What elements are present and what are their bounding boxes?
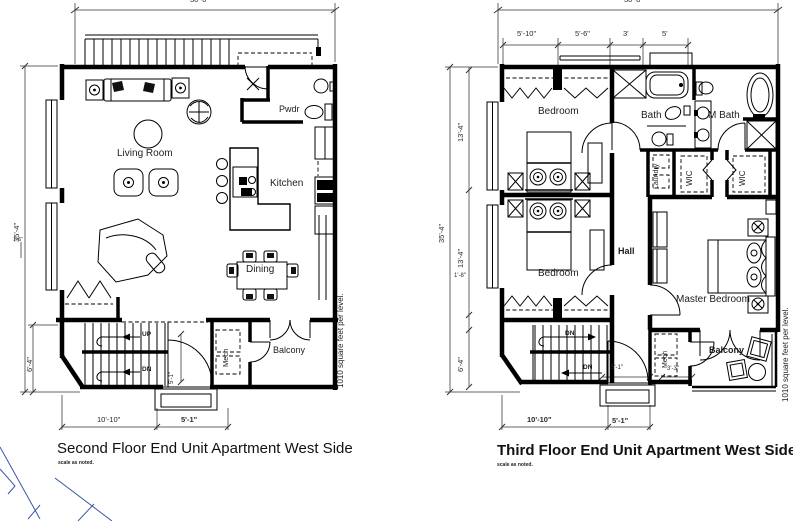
dashed-lines-third bbox=[506, 78, 765, 376]
dim-third-bottom-entry: 5'-1" bbox=[612, 417, 628, 425]
living-room-furniture bbox=[86, 78, 211, 282]
dim-second-bottom-entry: 5'-1" bbox=[181, 416, 197, 424]
dim-third-left-4: 6'-4" bbox=[457, 357, 465, 372]
room-label-dining: Dining bbox=[246, 265, 274, 275]
room-label-balcony-second: Balcony bbox=[273, 346, 305, 355]
dim-third-seg-1: 5'-10" bbox=[517, 30, 536, 38]
dim-second-stair-depth: 6'-4" bbox=[26, 357, 34, 372]
dim-third-seg-3: 3' bbox=[623, 30, 629, 38]
dim-second-overall-width: 30'-0" bbox=[190, 0, 209, 4]
stairs-second bbox=[85, 322, 168, 387]
doors-second bbox=[67, 66, 310, 387]
dim-third-left-2: 13'-4" bbox=[457, 249, 465, 268]
porch-third bbox=[600, 385, 655, 406]
drawing-sheet: 30'-0" 35'-4" 1'-6" 6'-4" 10'-10" 5'-1" … bbox=[0, 0, 793, 521]
dining-furniture bbox=[227, 251, 298, 300]
dim-second-bottom-left: 10'-10" bbox=[97, 416, 120, 424]
deck-railing-second bbox=[85, 35, 321, 65]
stair-label-dn-second: DN bbox=[142, 367, 151, 374]
stair-label-up: UP bbox=[142, 332, 151, 339]
room-label-bedroom-a: Bedroom bbox=[538, 107, 579, 117]
dim-third-porch-width: 5'-1" bbox=[611, 365, 623, 371]
room-label-bath: Bath bbox=[641, 111, 662, 121]
dim-second-entry-side: 5'-1" bbox=[169, 372, 175, 384]
room-label-bedroom-b: Bedroom bbox=[538, 269, 579, 279]
plan-title-second: Second Floor End Unit Apartment West Sid… bbox=[57, 441, 353, 456]
dim-third-bottom-left: 10'-10" bbox=[527, 416, 552, 424]
room-label-mech-third: Mech bbox=[662, 351, 669, 368]
dim-third-seg-4: 5' bbox=[662, 30, 668, 38]
dashed-lines-second bbox=[65, 53, 318, 374]
windows-second bbox=[46, 100, 326, 300]
dim-third-overall-height: 35'-4" bbox=[438, 224, 446, 243]
room-label-pwdr: Pwdr bbox=[279, 105, 300, 114]
room-label-hall: Hall bbox=[618, 247, 635, 256]
bath-fixtures bbox=[613, 70, 690, 146]
dim-third-overall-width: 30'-8" bbox=[624, 0, 643, 4]
dim-third-left-3: 1'-8" bbox=[454, 273, 466, 279]
bedroom-furniture bbox=[508, 132, 604, 270]
porch-second bbox=[155, 389, 217, 410]
room-label-wic-a: WIC bbox=[686, 170, 694, 186]
area-note-second: 1010 square feet per level. bbox=[337, 293, 345, 388]
dim-second-window-break: 1'-6" bbox=[13, 238, 23, 243]
corner-site-lines bbox=[0, 447, 112, 521]
room-label-m-bath: M Bath bbox=[708, 111, 740, 121]
room-label-kitchen: Kitchen bbox=[270, 179, 303, 189]
partitions-second bbox=[82, 66, 303, 387]
dim-third-left-1: 13'-4" bbox=[457, 123, 465, 142]
room-label-mech-second: Mech bbox=[222, 349, 230, 367]
room-label-master-bedroom: Master Bedroom bbox=[676, 295, 750, 305]
room-label-wic-b: WIC bbox=[739, 170, 747, 186]
scale-note-third: scale as noted. bbox=[497, 463, 533, 468]
room-label-laundry: Laundry bbox=[653, 164, 660, 189]
plan-title-third: Third Floor End Unit Apartment West Side bbox=[497, 443, 793, 458]
room-label-living-room: Living Room bbox=[117, 149, 173, 159]
dim-third-seg-2: 5'-6" bbox=[575, 30, 590, 38]
scale-note-second: scale as noted. bbox=[58, 461, 94, 466]
stair-label-dn-upper: DN bbox=[565, 331, 574, 338]
room-label-balcony-third: Balcony bbox=[709, 346, 744, 355]
stair-label-dn-lower: DN bbox=[583, 365, 592, 372]
powder-room-fixtures bbox=[305, 79, 335, 120]
area-note-third: 1010 square feet per level. bbox=[782, 307, 790, 402]
